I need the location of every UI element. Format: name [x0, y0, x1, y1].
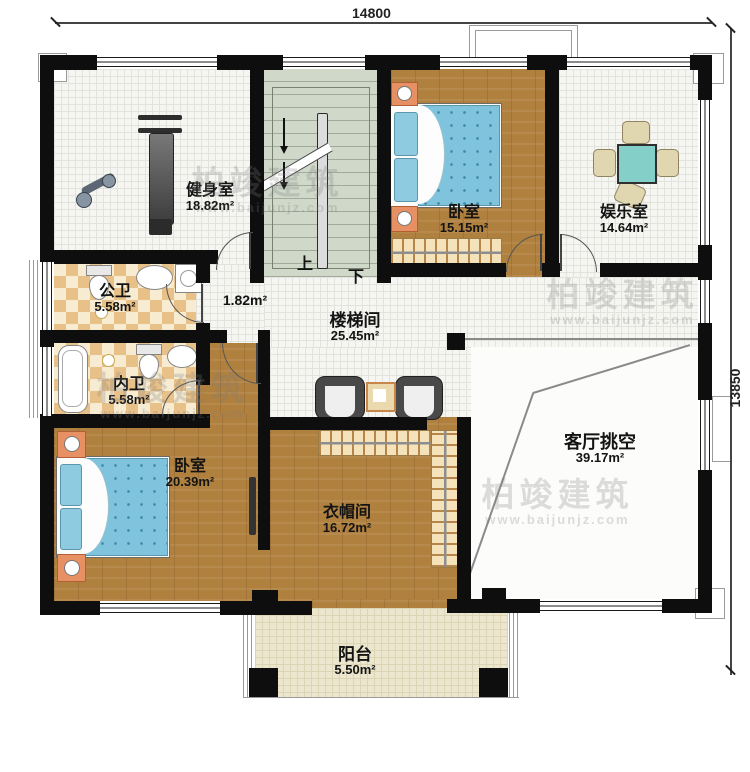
- dimension-right-value: 13850: [727, 353, 743, 423]
- column: [479, 668, 508, 697]
- window: [700, 400, 710, 470]
- door-leaf: [560, 234, 562, 271]
- wall: [698, 55, 712, 100]
- game-table: [617, 144, 657, 184]
- room-label-nook-area: 1.82m²: [210, 293, 280, 307]
- room-label-cloakroom: 衣帽间 16.72m²: [303, 504, 391, 535]
- stair-down-label: 下: [348, 263, 364, 287]
- lamp-icon: [64, 560, 80, 576]
- wall: [40, 55, 54, 262]
- pillow: [394, 158, 418, 202]
- pillow: [60, 508, 82, 550]
- watermark: 柏竣建筑 www.baijunjz.com: [440, 478, 675, 527]
- lamp-icon: [397, 86, 412, 101]
- room-label-entertainment: 娱乐室 14.64m²: [582, 204, 666, 235]
- room-label-bedroom-main: 卧室 20.39m²: [150, 458, 230, 489]
- exterior-sill-lines: [29, 260, 38, 418]
- watermark: 柏竣建筑 www.baijunjz.com: [150, 166, 385, 215]
- wall: [482, 588, 506, 600]
- floor-plan-canvas: 上 下: [0, 0, 750, 772]
- room-label-bedroom-top: 卧室 15.15m²: [424, 204, 504, 235]
- sink-icon: [167, 345, 197, 368]
- pillow: [394, 112, 418, 156]
- dimension-top-value: 14800: [352, 5, 391, 21]
- wall: [698, 323, 712, 400]
- armchair-seat: [404, 386, 434, 417]
- wall: [698, 470, 712, 613]
- chair: [656, 149, 679, 177]
- window: [42, 347, 52, 416]
- exercise-bike-wheel: [102, 174, 116, 188]
- room-label-public-bath: 公卫 5.58m²: [80, 283, 150, 314]
- wall: [391, 263, 506, 277]
- door-leaf: [249, 232, 251, 269]
- wall: [545, 69, 559, 277]
- wall: [220, 601, 312, 615]
- armchair: [395, 376, 443, 420]
- lamp-icon: [64, 436, 80, 452]
- dimension-line-right: [730, 28, 732, 675]
- wall: [447, 333, 465, 350]
- column: [249, 668, 278, 697]
- lamp-icon: [397, 211, 412, 226]
- dimension-line-top: [55, 22, 712, 24]
- watermark: 柏竣建筑 www.baijunjz.com: [505, 278, 740, 327]
- wall: [40, 601, 100, 615]
- stair-up-label: 上: [297, 250, 313, 274]
- door-leaf: [540, 234, 542, 271]
- window: [100, 603, 220, 613]
- nightstand: [57, 431, 86, 458]
- gym-bench-base: [149, 219, 172, 235]
- room-label-stairwell: 楼梯间 25.45m²: [300, 312, 410, 343]
- side-table: [366, 382, 396, 412]
- window: [440, 57, 527, 67]
- nightstand: [57, 554, 86, 582]
- stair-direction-arrow: [283, 118, 285, 146]
- chair: [593, 149, 616, 177]
- wardrobe: [318, 430, 433, 456]
- wall: [252, 590, 278, 602]
- pillow: [60, 464, 82, 506]
- wall: [365, 55, 440, 70]
- wall: [527, 55, 567, 70]
- nightstand: [391, 82, 418, 106]
- window: [540, 601, 662, 611]
- room-label-balcony: 阳台 5.50m²: [315, 646, 395, 677]
- balcony-rail: [509, 613, 518, 700]
- weight-rack-icon: [138, 115, 182, 120]
- wall: [217, 55, 283, 70]
- nightstand: [391, 206, 418, 232]
- window: [42, 262, 52, 330]
- wall: [447, 599, 540, 613]
- pendant-lamp-icon: [102, 354, 115, 367]
- wall: [40, 330, 227, 343]
- window: [97, 57, 217, 67]
- wall: [40, 416, 54, 615]
- void-edge-line: [465, 338, 698, 340]
- wall: [270, 417, 427, 430]
- title-block: 二层平面图 1:100 本层建筑面积：190.58m² 层高:3.6m 柏竣建筑…: [0, 698, 750, 772]
- armchair: [315, 376, 365, 420]
- stair-arrow-head: [280, 146, 288, 154]
- wall: [196, 264, 210, 283]
- side-table-top: [373, 389, 386, 402]
- chair: [622, 121, 650, 144]
- armchair-seat: [325, 386, 355, 417]
- watermark: 柏竣建筑 www.baijunjz.com: [55, 372, 290, 421]
- window: [567, 57, 690, 67]
- wall: [600, 263, 712, 277]
- room-label-living-void: 客厅挑空 39.17m²: [538, 434, 662, 465]
- window: [700, 100, 710, 245]
- door-leaf: [201, 284, 203, 322]
- wall: [54, 250, 218, 264]
- tv-icon: [249, 477, 256, 535]
- wall: [662, 599, 712, 613]
- exercise-bike-wheel: [76, 192, 92, 208]
- window: [283, 57, 365, 67]
- wall: [542, 263, 560, 277]
